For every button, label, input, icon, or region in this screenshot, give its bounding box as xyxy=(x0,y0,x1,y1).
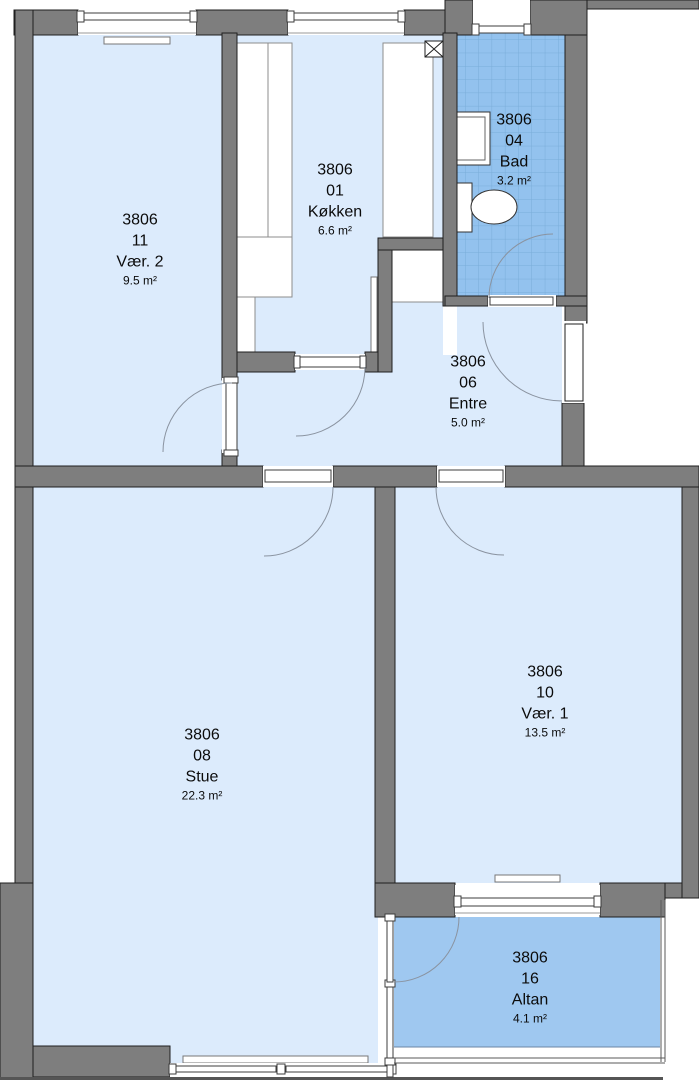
room-building-no: 3806 xyxy=(182,725,223,746)
wall-right-upper xyxy=(565,35,587,323)
room-building-no: 3806 xyxy=(512,948,548,969)
room-name: Entre xyxy=(449,394,487,415)
room-building-no: 3806 xyxy=(521,662,568,683)
wall xyxy=(505,466,699,487)
room-label-bad: 3806 04 Bad 3.2 m² xyxy=(496,110,532,189)
wall xyxy=(333,466,437,487)
room-label-stue: 3806 08 Stue 22.3 m² xyxy=(182,725,223,804)
floor-plan: 3806 11 Vær. 2 9.5 m² 3806 01 Køkken 6.6… xyxy=(0,0,699,1080)
room-label-vaer-2: 3806 11 Vær. 2 9.5 m² xyxy=(116,210,163,289)
wall xyxy=(445,0,473,35)
window xyxy=(385,980,395,1077)
room-area: 13.5 m² xyxy=(521,725,568,741)
wall xyxy=(375,883,455,917)
window xyxy=(287,10,405,35)
kitchen-counter-right xyxy=(383,43,433,237)
window xyxy=(454,885,601,915)
wall-left xyxy=(15,10,33,883)
room-number: 16 xyxy=(512,969,548,990)
wall-bottom xyxy=(33,1046,170,1077)
radiator-icon xyxy=(104,37,170,44)
wall xyxy=(196,10,288,35)
room-name: Stue xyxy=(182,767,223,788)
room-number: 11 xyxy=(116,231,163,252)
window xyxy=(169,1063,396,1077)
room-number: 06 xyxy=(449,373,487,394)
room-area: 22.3 m² xyxy=(182,788,223,804)
wall-right-lower xyxy=(682,487,699,898)
wall-left-lower xyxy=(0,883,33,1080)
wall-right-mid xyxy=(562,403,584,466)
wall xyxy=(587,0,699,9)
room-name: Vær. 1 xyxy=(521,704,568,725)
wall-vaer2-kokken xyxy=(222,33,237,380)
wall xyxy=(445,296,488,306)
room-name: Altan xyxy=(512,990,548,1011)
radiator-icon xyxy=(183,1056,368,1063)
radiator-icon xyxy=(495,875,560,882)
room-name: Køkken xyxy=(308,202,362,223)
room-building-no: 3806 xyxy=(449,352,487,373)
room-number: 10 xyxy=(521,683,568,704)
wall xyxy=(530,0,587,35)
wall xyxy=(15,466,263,487)
room-number: 08 xyxy=(182,746,223,767)
room-building-no: 3806 xyxy=(308,160,362,181)
wall xyxy=(237,352,295,372)
window xyxy=(77,10,197,35)
wall xyxy=(556,296,587,306)
entre-closet xyxy=(392,250,445,302)
room-label-kokken: 3806 01 Køkken 6.6 m² xyxy=(308,160,362,239)
wall-stue-vaer1 xyxy=(375,487,395,883)
wall xyxy=(600,883,665,917)
window xyxy=(472,0,531,35)
room-area: 4.1 m² xyxy=(512,1011,548,1027)
wall-bad-west xyxy=(443,33,457,306)
room-label-vaer-1: 3806 10 Vær. 1 13.5 m² xyxy=(521,662,568,741)
room-area: 5.0 m² xyxy=(449,415,487,431)
room-number: 01 xyxy=(308,181,362,202)
room-area: 6.6 m² xyxy=(308,223,362,239)
room-name: Bad xyxy=(496,152,532,173)
radiator-icon xyxy=(371,277,377,353)
wall xyxy=(378,238,392,372)
room-label-altan: 3806 16 Altan 4.1 m² xyxy=(512,948,548,1027)
room-label-entre: 3806 06 Entre 5.0 m² xyxy=(449,352,487,431)
room-area: 3.2 m² xyxy=(496,173,532,189)
room-number: 04 xyxy=(496,131,532,152)
vent-shaft-icon xyxy=(425,41,443,57)
room-building-no: 3806 xyxy=(496,110,532,131)
wall xyxy=(404,10,445,35)
room-area: 9.5 m² xyxy=(116,273,163,289)
room-name: Vær. 2 xyxy=(116,252,163,273)
room-building-no: 3806 xyxy=(116,210,163,231)
